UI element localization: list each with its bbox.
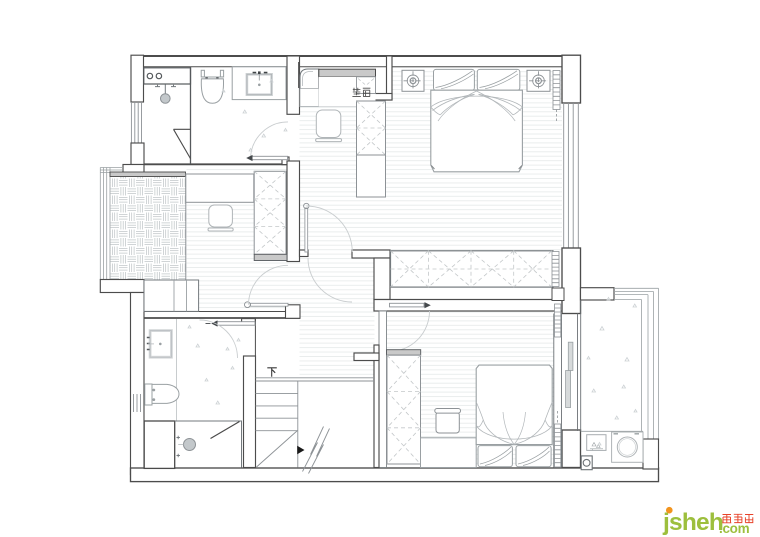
svg-text:jsheh: jsheh: [662, 509, 723, 536]
